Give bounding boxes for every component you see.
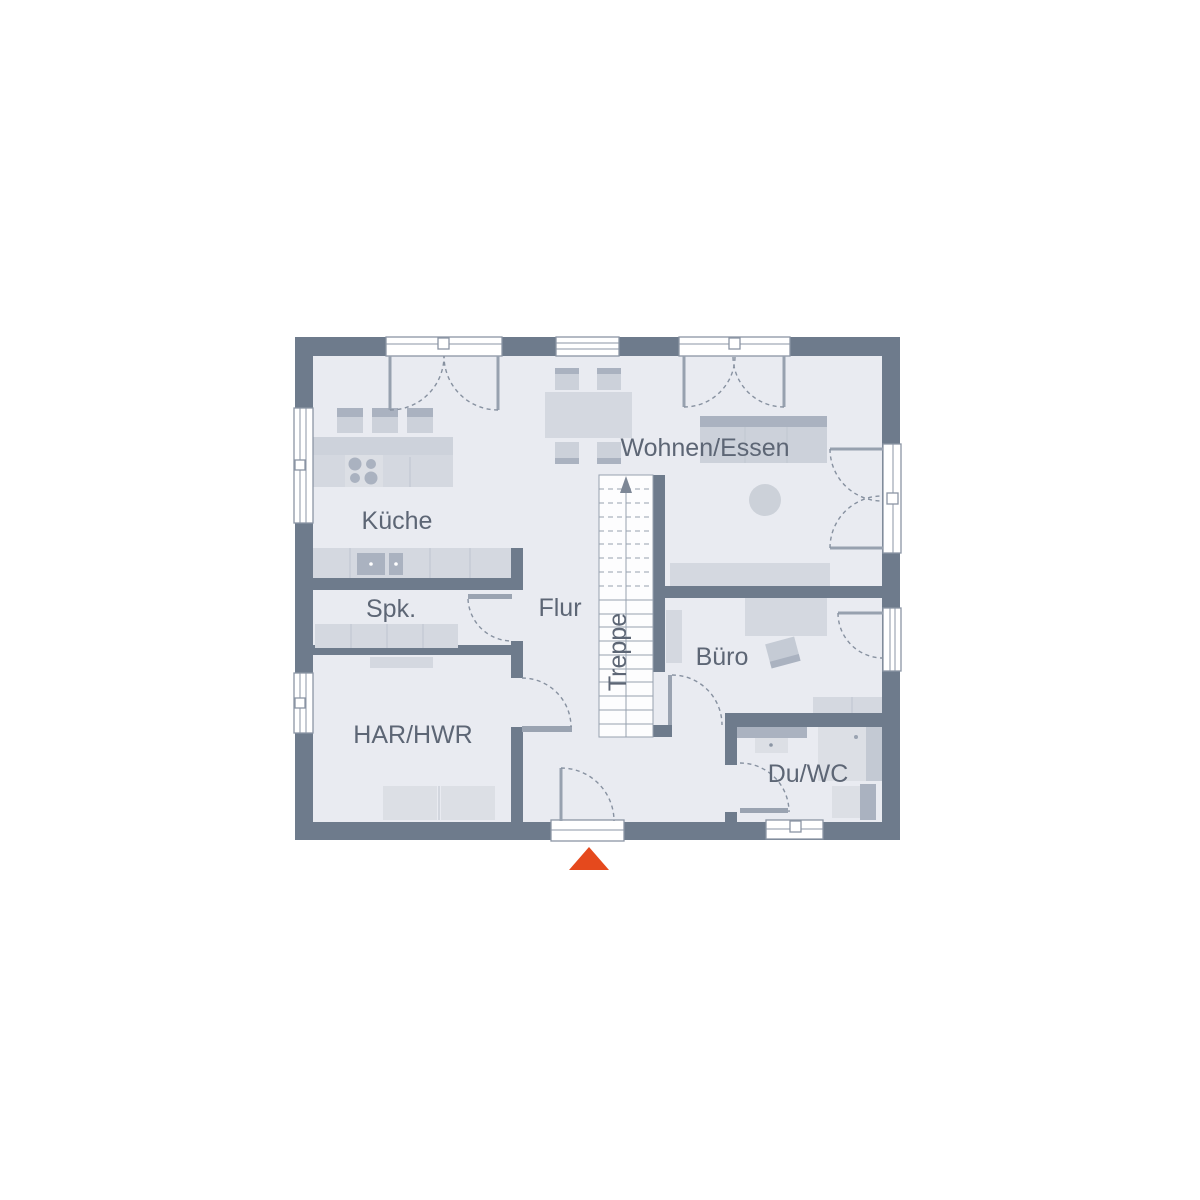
room-label-du-wc: Du/WC [768,760,849,788]
wall-har-right [511,727,523,822]
window-door-right-buero [883,608,901,671]
wall-duwc-top [725,713,882,727]
coffee-table [749,484,781,516]
room-label-kueche: Küche [362,507,433,535]
pantry-shelf [315,624,458,648]
window-left-har [294,673,313,733]
room-label-treppe: Treppe [604,613,632,691]
entrance-opening [551,820,624,841]
wall-stair-foot [653,725,672,737]
wall-right [882,337,900,840]
window-left-kueche [294,408,313,523]
wall-counter-end [511,548,523,578]
wall-duwc-left [725,713,737,765]
office-shelf [666,610,682,663]
room-label-spk: Spk. [366,595,416,623]
utility-shelf [370,657,433,668]
french-door-right-wohnen [883,444,901,553]
office-bench [813,697,882,713]
bar-stools [337,408,433,433]
wall-duwc-left-stub [725,812,737,822]
wall-wohnen-buero [665,586,882,598]
room-label-flur: Flur [538,594,581,622]
window-bottom-duwc [766,820,823,839]
room-label-buero: Büro [696,643,749,671]
french-door-top-kueche [386,337,502,356]
stairs [599,475,653,737]
room-label-har-hwr: HAR/HWR [353,721,472,749]
room-label-wohnen-essen: Wohnen/Essen [620,434,789,462]
kitchen-counter-lower [313,548,511,578]
wall-stair-right [653,475,665,672]
dining-table [545,392,632,438]
window-top-essen [556,337,619,356]
entrance-marker [569,847,609,870]
wall-kueche-spk [313,578,523,590]
toilet [832,784,876,820]
kitchen-counter-upper [313,437,453,487]
desk [745,598,827,636]
french-door-top-wohnen [679,337,790,356]
floor-plan-image: Küche Wohnen/Essen Spk. Flur Treppe Büro… [0,0,1200,1200]
floor-plan-svg: Küche Wohnen/Essen Spk. Flur Treppe Büro… [0,0,1200,1200]
lowboard [670,563,830,586]
washer-dryer [383,786,495,820]
